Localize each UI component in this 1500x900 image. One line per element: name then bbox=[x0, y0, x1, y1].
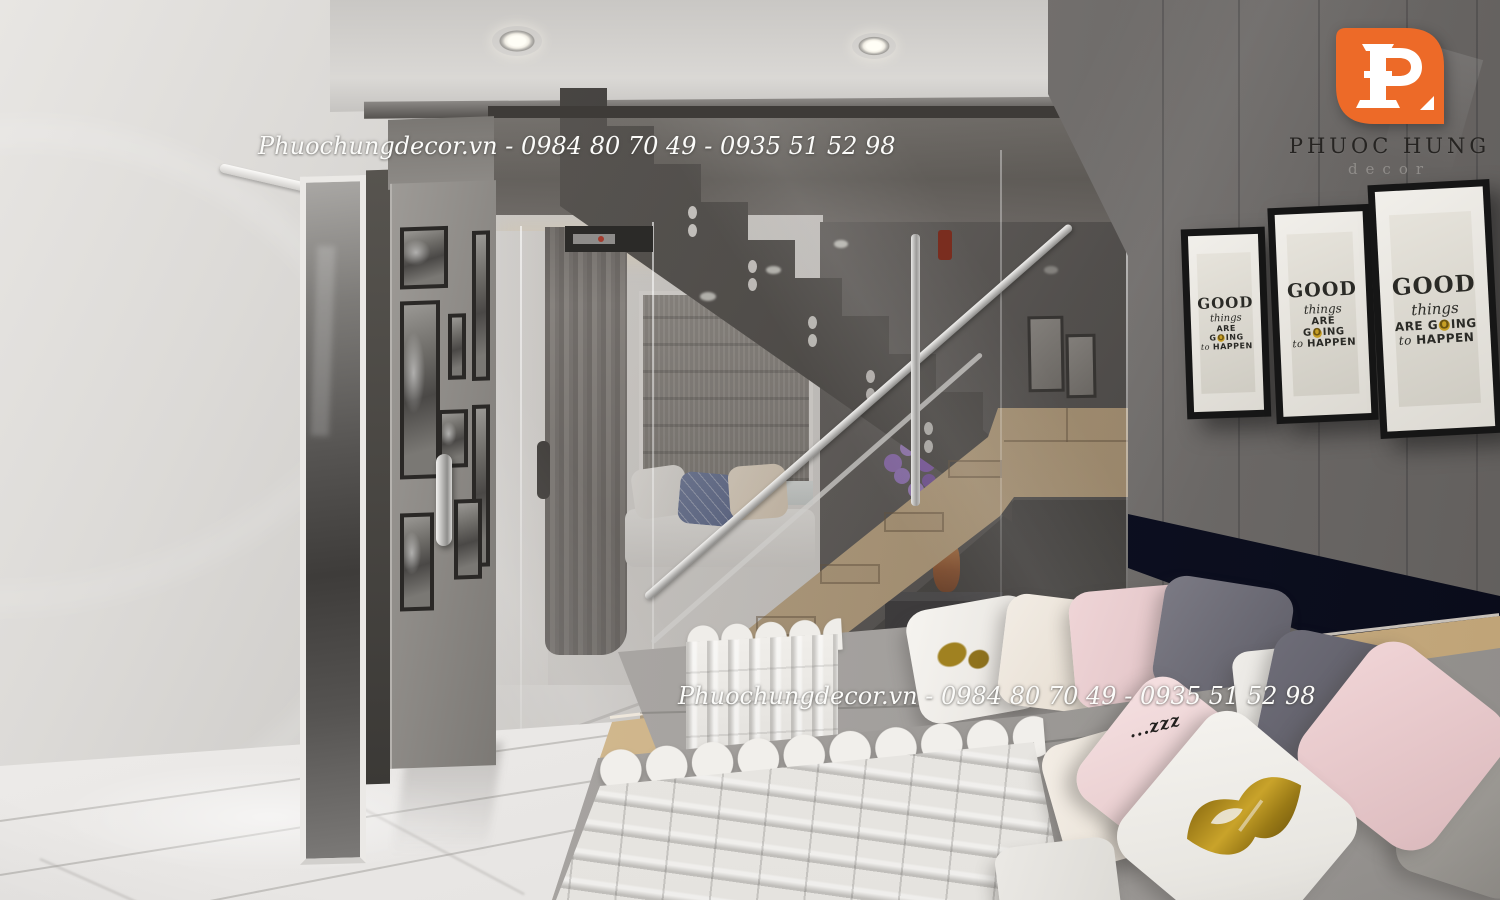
poster-mat: GOOD things ARE GOING to HAPPEN bbox=[1375, 186, 1495, 431]
poster-frame: GOOD things ARE GOING to HAPPEN bbox=[1267, 204, 1378, 424]
poster-line-to-happen: to HAPPEN bbox=[1398, 330, 1474, 348]
door-closer-plate bbox=[573, 234, 615, 244]
poster-mat: GOOD things ARE GOING to HAPPEN bbox=[1275, 211, 1372, 417]
wall-edge-strip bbox=[366, 170, 390, 785]
watermark-top: Phuochungdecor.vn - 0984 80 70 49 - 0935… bbox=[258, 132, 896, 160]
poster-frame: GOOD things ARE GOING to HAPPEN bbox=[1181, 227, 1272, 420]
reflected-light bbox=[1044, 266, 1058, 274]
poster-mat: GOOD things ARE GOING to HAPPEN bbox=[1188, 234, 1264, 412]
reflected-light bbox=[834, 240, 848, 248]
recessed-light bbox=[852, 33, 896, 59]
door-window-inset bbox=[472, 230, 490, 381]
reflected-light bbox=[700, 292, 716, 301]
sun-icon: O bbox=[1438, 317, 1451, 332]
balustrade-post bbox=[911, 234, 920, 506]
poster-line-good: GOOD bbox=[1391, 270, 1476, 301]
door-closer-logo-dot bbox=[598, 236, 604, 242]
glass-partition-header bbox=[488, 106, 1132, 118]
reflected-light bbox=[766, 266, 781, 274]
door-window-inset bbox=[400, 512, 434, 611]
sun-icon: O bbox=[1312, 327, 1323, 338]
red-fitting bbox=[938, 230, 952, 260]
poster-line-good: GOOD bbox=[1287, 278, 1358, 303]
poster-artwork: GOOD things ARE GOING to HAPPEN bbox=[1286, 232, 1360, 396]
brand-name: PHUOC HUNG bbox=[1282, 134, 1497, 158]
poster-artwork: GOOD things ARE GOING to HAPPEN bbox=[1197, 252, 1255, 395]
poster-line-to-happen: to HAPPEN bbox=[1292, 337, 1356, 351]
recessed-light bbox=[492, 26, 542, 56]
door-window-inset bbox=[448, 313, 466, 380]
ceiling bbox=[330, 0, 1145, 112]
door-window-inset bbox=[400, 226, 448, 290]
interior-render-scene: GOOD things ARE GOING to HAPPEN GOOD thi… bbox=[0, 0, 1500, 900]
poster-line-are-going: ARE GOING bbox=[1199, 324, 1253, 344]
door-handle bbox=[436, 454, 452, 547]
poster-artwork: GOOD things ARE GOING to HAPPEN bbox=[1389, 211, 1481, 407]
door-window-inset bbox=[454, 499, 482, 580]
phuoc-hung-logo-badge bbox=[1334, 26, 1446, 126]
brand-subtitle: decor bbox=[1282, 160, 1497, 178]
poster-frame: GOOD things ARE GOING to HAPPEN bbox=[1367, 179, 1500, 439]
poster-line-are-going: ARE GOING bbox=[1290, 315, 1358, 340]
poster-line-good: GOOD bbox=[1197, 294, 1254, 314]
door-window-inset bbox=[400, 300, 440, 479]
glass-edge bbox=[520, 226, 522, 762]
poster-line-to-happen: to HAPPEN bbox=[1201, 342, 1253, 353]
watermark-middle: Phuochungdecor.vn - 0984 80 70 49 - 0935… bbox=[678, 682, 1316, 710]
paneled-door bbox=[390, 180, 496, 769]
phuoc-hung-logo-monogram bbox=[1334, 26, 1446, 126]
